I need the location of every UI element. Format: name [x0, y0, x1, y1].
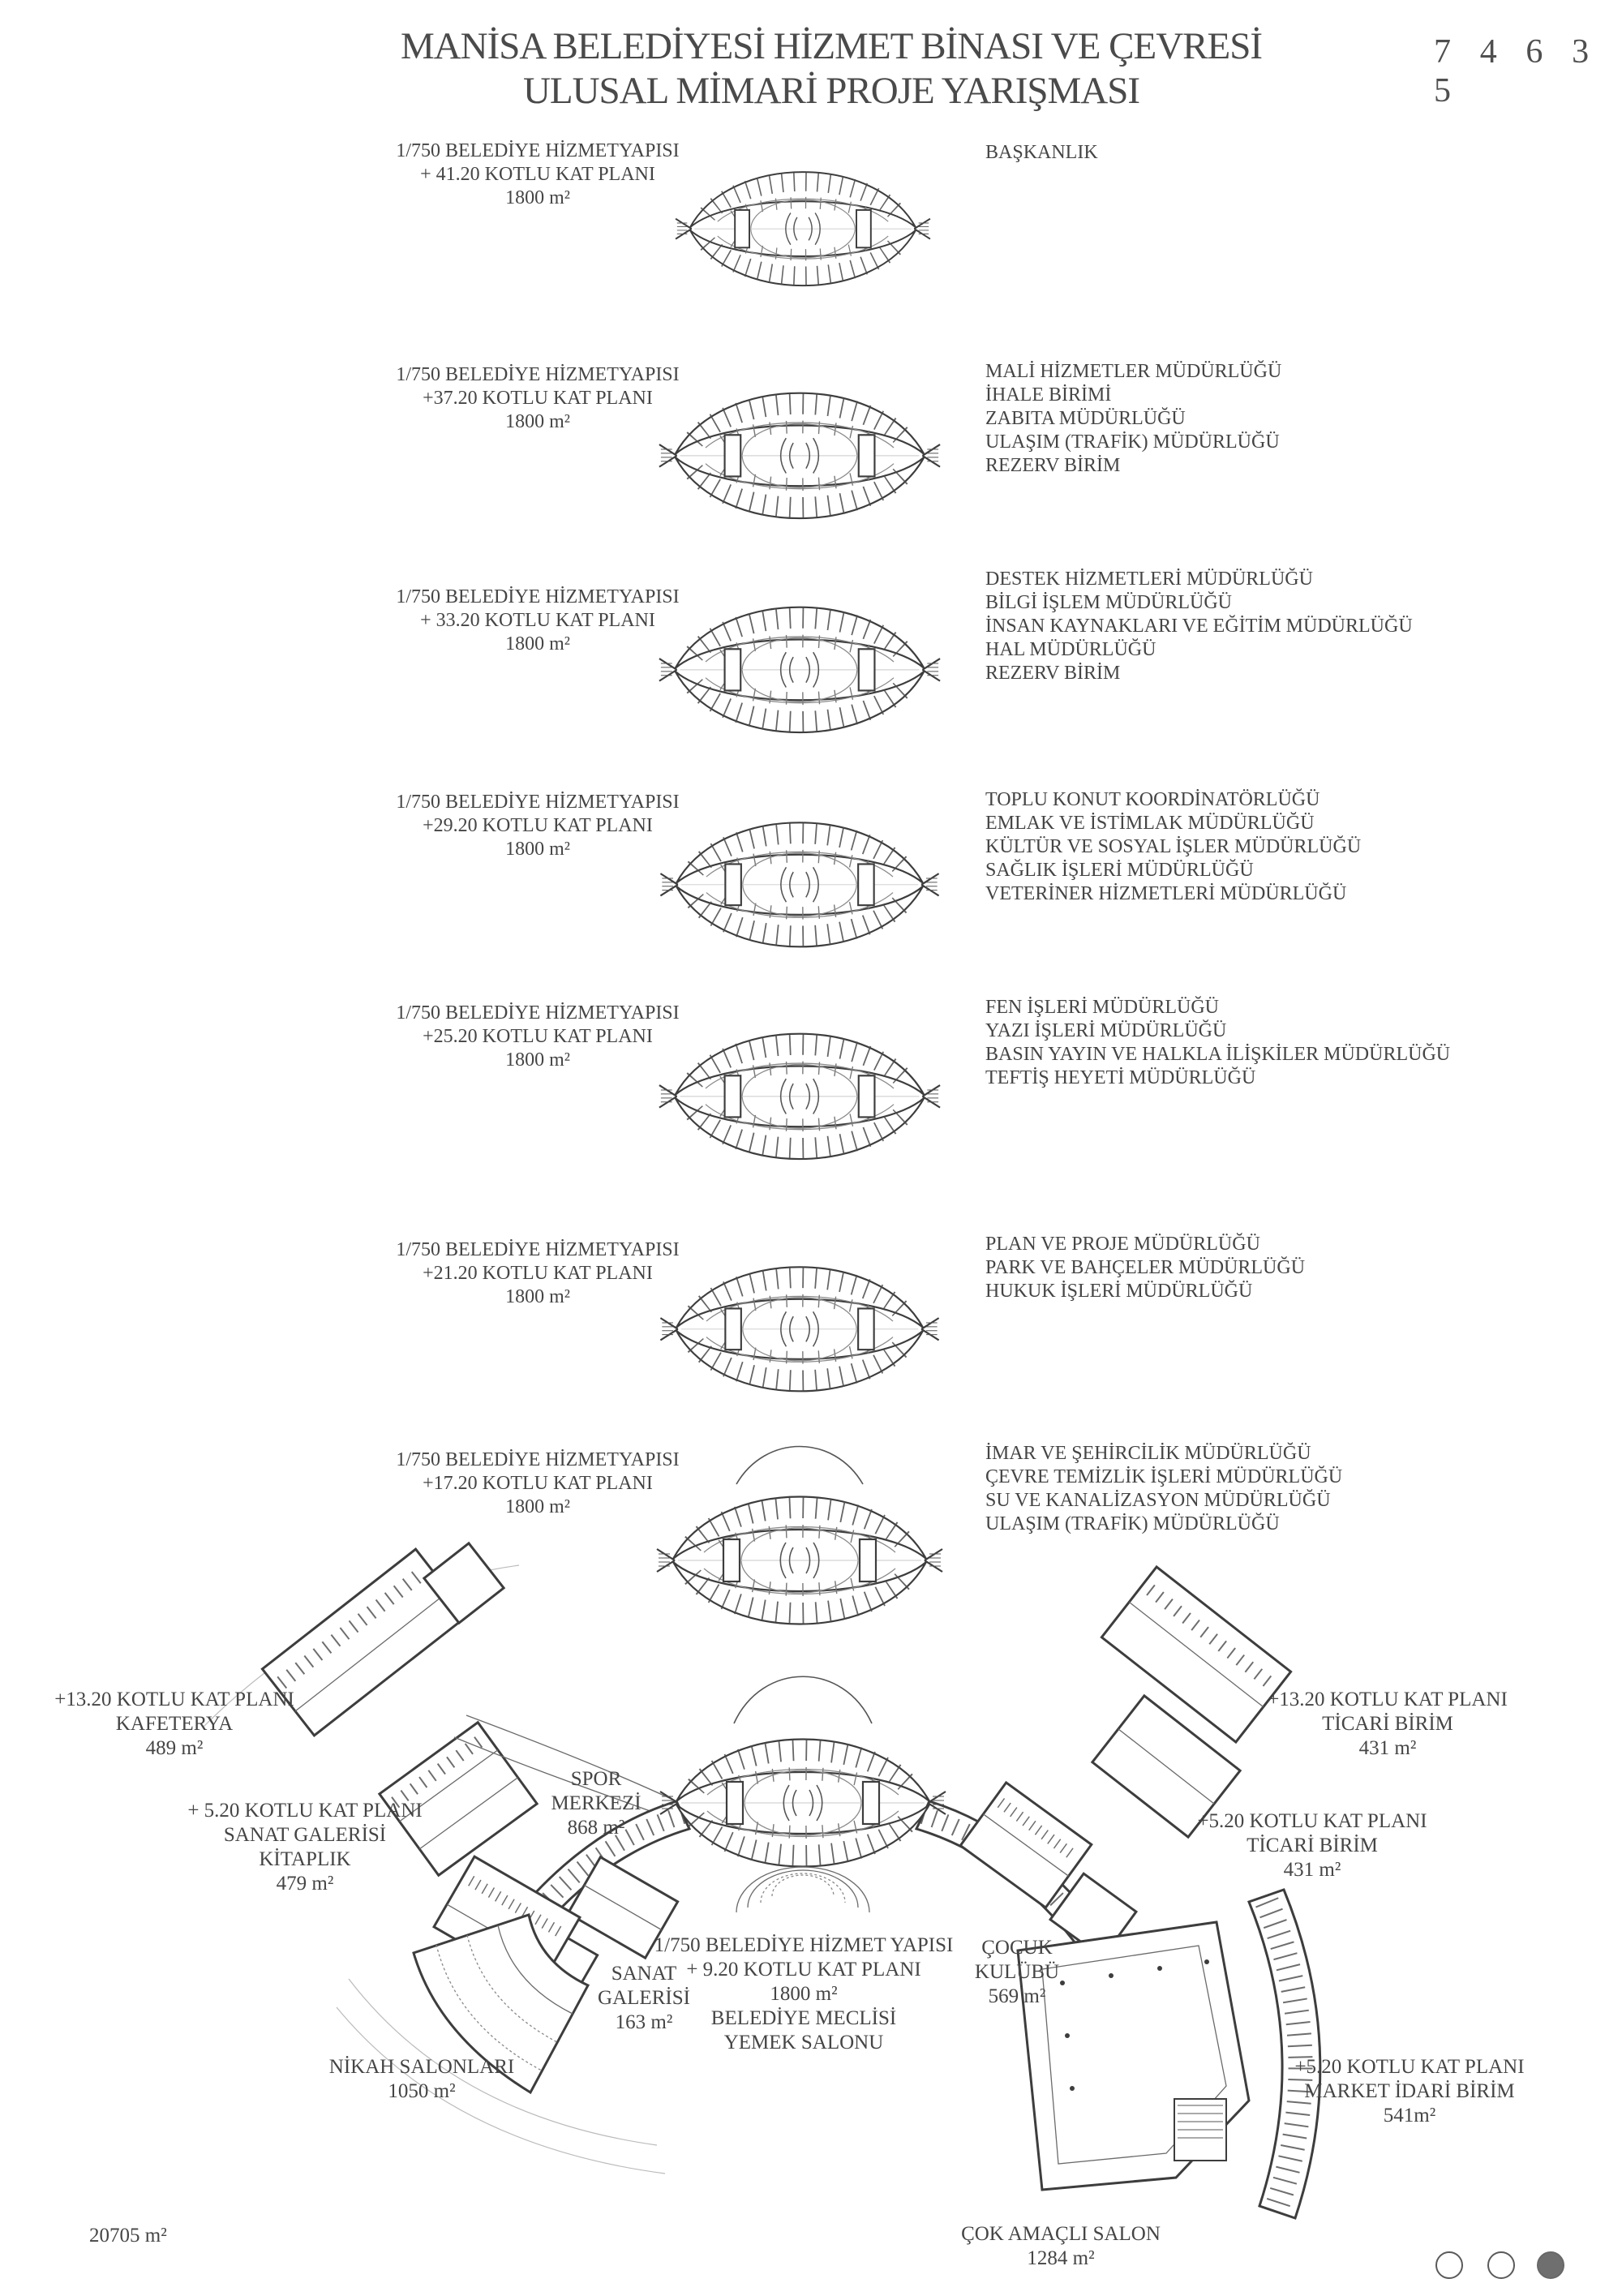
board-title-line2: ULUSAL MİMARİ PROJE YARIŞMASI — [122, 69, 1541, 114]
label-line: 431 m² — [1209, 1736, 1566, 1761]
ticari-birim-520-label: +5.20 KOTLU KAT PLANI TİCARİ BİRİM 431 m… — [1134, 1809, 1491, 1882]
label-line: 479 m² — [127, 1872, 483, 1896]
department-item: SU VE KANALİZASYON MÜDÜRLÜĞÜ — [985, 1489, 1622, 1513]
competition-number: 7 4 6 3 5 — [1434, 32, 1620, 110]
board-header: MANİSA BELEDİYESİ HİZMET BİNASI VE ÇEVRE… — [122, 24, 1541, 114]
department-item: HAL MÜDÜRLÜĞÜ — [985, 638, 1622, 662]
department-item: HUKUK İŞLERİ MÜDÜRLÜĞÜ — [985, 1280, 1622, 1303]
competition-board: MANİSA BELEDİYESİ HİZMET BİNASI VE ÇEVRE… — [0, 0, 1622, 2296]
department-item: PARK VE BAHÇELER MÜDÜRLÜĞÜ — [985, 1256, 1622, 1280]
total-area-label: 20705 m² — [89, 2225, 167, 2247]
cok-amacli-salon-label: ÇOK AMAÇLI SALON 1284 m² — [882, 2222, 1239, 2271]
department-item: BİLGİ İŞLEM MÜDÜRLÜĞÜ — [985, 591, 1622, 615]
department-item: TOPLU KONUT KOORDİNATÖRLÜĞÜ — [985, 788, 1622, 812]
department-item: İHALE BİRİMİ — [985, 384, 1622, 407]
department-item: BASIN YAYIN VE HALKLA İLİŞKİLER MÜDÜRLÜĞ… — [985, 1043, 1622, 1066]
ticari-birim-1320-label: +13.20 KOTLU KAT PLANI TİCARİ BİRİM 431 … — [1209, 1688, 1566, 1761]
label-line: 868 m² — [418, 1816, 775, 1840]
department-item: REZERV BİRİM — [985, 662, 1622, 685]
label-line: 1050 m² — [243, 2079, 600, 2104]
page-dot-1[interactable] — [1435, 2251, 1463, 2279]
department-item: İMAR VE ŞEHİRCİLİK MÜDÜRLÜĞÜ — [985, 1442, 1622, 1466]
floor-plan-drawing-41-20 — [669, 136, 937, 310]
label-line: KAFETERYA — [0, 1712, 353, 1736]
label-line: YEMEK SALONU — [625, 2031, 982, 2055]
page-dot-3[interactable] — [1537, 2251, 1564, 2279]
spor-merkezi-label: SPOR MERKEZİ 868 m² — [418, 1767, 775, 1840]
floor-departments-41-20: BAŞKANLIK — [985, 141, 1622, 165]
market-idari-birim-label: +5.20 KOTLU KAT PLANI MARKET İDARİ BİRİM… — [1231, 2055, 1588, 2128]
floor-plan-drawing-29-20 — [654, 783, 946, 973]
label-line: 489 m² — [0, 1736, 353, 1761]
cocuk-kulubu-label: ÇOCUK KULÜBÜ 569 m² — [839, 1936, 1195, 2009]
page-dot-2[interactable] — [1487, 2251, 1515, 2279]
label-line: KİTAPLIK — [127, 1848, 483, 1872]
label-line: BELEDİYE MECLİSİ — [625, 2006, 982, 2031]
floor-departments-21-20: PLAN VE PROJE MÜDÜRLÜĞÜ PARK VE BAHÇELER… — [985, 1233, 1622, 1303]
label-line: TİCARİ BİRİM — [1209, 1712, 1566, 1736]
label-line: NİKAH SALONLARI — [243, 2055, 600, 2079]
label-line: 569 m² — [839, 1985, 1195, 2009]
department-item: BAŞKANLIK — [985, 141, 1622, 165]
department-item: EMLAK VE İSTİMLAK MÜDÜRLÜĞÜ — [985, 812, 1622, 835]
floor-departments-33-20: DESTEK HİZMETLERİ MÜDÜRLÜĞÜ BİLGİ İŞLEM … — [985, 568, 1622, 685]
department-item: KÜLTÜR VE SOSYAL İŞLER MÜDÜRLÜĞÜ — [985, 835, 1622, 859]
floor-plan-drawing-37-20 — [654, 354, 946, 545]
department-item: ÇEVRE TEMİZLİK İŞLERİ MÜDÜRLÜĞÜ — [985, 1466, 1622, 1489]
label-line: TİCARİ BİRİM — [1134, 1834, 1491, 1858]
label-line: 1284 m² — [882, 2247, 1239, 2271]
nikah-salonlari-label: NİKAH SALONLARI 1050 m² — [243, 2055, 600, 2104]
department-item: VETERİNER HİZMETLERİ MÜDÜRLÜĞÜ — [985, 882, 1622, 906]
department-item: REZERV BİRİM — [985, 454, 1622, 478]
department-item: PLAN VE PROJE MÜDÜRLÜĞÜ — [985, 1233, 1622, 1256]
department-item: YAZI İŞLERİ MÜDÜRLÜĞÜ — [985, 1019, 1622, 1043]
label-line: +13.20 KOTLU KAT PLANI — [1209, 1688, 1566, 1712]
department-item: ZABITA MÜDÜRLÜĞÜ — [985, 407, 1622, 431]
floor-departments-17-20: İMAR VE ŞEHİRCİLİK MÜDÜRLÜĞÜ ÇEVRE TEMİZ… — [985, 1442, 1622, 1536]
floor-plan-drawing-25-20 — [654, 994, 946, 1186]
label-line: +5.20 KOTLU KAT PLANI — [1134, 1809, 1491, 1834]
kafeterya-label: +13.20 KOTLU KAT PLANI KAFETERYA 489 m² — [0, 1688, 353, 1761]
department-item: İNSAN KAYNAKLARI VE EĞİTİM MÜDÜRLÜĞÜ — [985, 615, 1622, 638]
label-line: SPOR — [418, 1767, 775, 1792]
department-item: TEFTİŞ HEYETİ MÜDÜRLÜĞÜ — [985, 1066, 1622, 1090]
label-line: KULÜBÜ — [839, 1960, 1195, 1985]
department-item: MALİ HİZMETLER MÜDÜRLÜĞÜ — [985, 360, 1622, 384]
floor-departments-29-20: TOPLU KONUT KOORDİNATÖRLÜĞÜ EMLAK VE İST… — [985, 788, 1622, 906]
label-line: 541m² — [1231, 2104, 1588, 2128]
department-item: DESTEK HİZMETLERİ MÜDÜRLÜĞÜ — [985, 568, 1622, 591]
department-item: ULAŞIM (TRAFİK) MÜDÜRLÜĞÜ — [985, 431, 1622, 454]
label-line: MARKET İDARİ BİRİM — [1231, 2079, 1588, 2104]
department-item: ULAŞIM (TRAFİK) MÜDÜRLÜĞÜ — [985, 1513, 1622, 1536]
floor-departments-37-20: MALİ HİZMETLER MÜDÜRLÜĞÜ İHALE BİRİMİ ZA… — [985, 360, 1622, 478]
market-idari-birim-building — [1249, 1890, 1320, 2218]
floor-plan-drawing-21-20 — [654, 1228, 946, 1418]
label-line: 431 m² — [1134, 1858, 1491, 1882]
label-line: +5.20 KOTLU KAT PLANI — [1231, 2055, 1588, 2079]
site-plan-drawing — [0, 1541, 1622, 2296]
label-line: +13.20 KOTLU KAT PLANI — [0, 1688, 353, 1712]
floor-plan-drawing-33-20 — [654, 568, 946, 759]
label-line: ÇOK AMAÇLI SALON — [882, 2222, 1239, 2247]
label-line: ÇOCUK — [839, 1936, 1195, 1960]
label-line: MERKEZİ — [418, 1792, 775, 1816]
department-item: SAĞLIK İŞLERİ MÜDÜRLÜĞÜ — [985, 859, 1622, 882]
department-item: FEN İŞLERİ MÜDÜRLÜĞÜ — [985, 996, 1622, 1019]
floor-departments-25-20: FEN İŞLERİ MÜDÜRLÜĞÜ YAZI İŞLERİ MÜDÜRLÜ… — [985, 996, 1622, 1090]
board-title-line1: MANİSA BELEDİYESİ HİZMET BİNASI VE ÇEVRE… — [122, 24, 1541, 69]
